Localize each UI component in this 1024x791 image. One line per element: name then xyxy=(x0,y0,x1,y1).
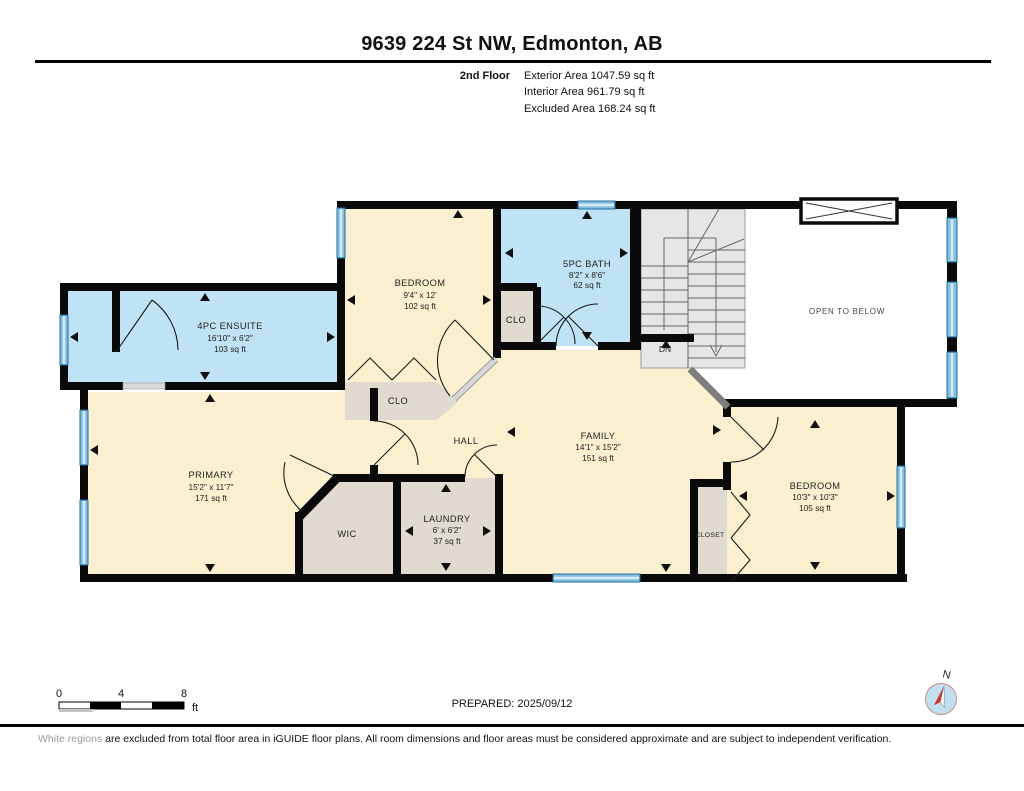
wall-segment xyxy=(393,474,465,482)
wall-segment xyxy=(80,574,907,582)
doorway-threshold xyxy=(123,383,165,389)
window xyxy=(553,574,640,582)
room-fills xyxy=(64,204,901,578)
stairs-dn-label: DN xyxy=(659,344,671,354)
wall-segment xyxy=(112,287,120,352)
window xyxy=(60,315,68,365)
wall-segment xyxy=(533,287,541,346)
floorplan-page: 9639 224 St NW, Edmonton, AB 2nd Floor E… xyxy=(0,0,1024,791)
room-label-laundry: LAUNDRY xyxy=(423,514,470,524)
wall-segment xyxy=(630,334,694,342)
wall-segment xyxy=(370,388,378,421)
wall-segment xyxy=(393,474,401,582)
disclaimer-prefix: White regions xyxy=(38,733,102,745)
room-area-bedroom-right: 105 sq ft xyxy=(799,503,832,513)
room-area-ensuite: 103 sq ft xyxy=(214,344,247,354)
disclaimer-text: White regions are excluded from total fl… xyxy=(38,733,891,745)
stairs-body xyxy=(641,209,745,368)
wall-segment xyxy=(690,479,698,578)
room-label-ensuite: 4PC ENSUITE xyxy=(197,321,262,331)
window xyxy=(947,352,957,398)
window xyxy=(337,208,345,258)
room-dims-bedroom-top: 9'4" x 12' xyxy=(403,290,437,300)
room-dims-bath: 8'2" x 8'6" xyxy=(569,270,605,280)
room-area-primary: 171 sq ft xyxy=(195,493,228,503)
room-area-laundry: 37 sq ft xyxy=(433,536,461,546)
wall-segment xyxy=(630,204,641,350)
room-label-wic: WIC xyxy=(337,529,356,539)
stairs xyxy=(641,209,745,368)
compass-north-label: N xyxy=(941,668,951,681)
window xyxy=(947,218,957,262)
room-label-clo-bedroom: CLO xyxy=(388,396,408,406)
footer-divider xyxy=(0,724,1024,727)
room-label-hall: HALL xyxy=(454,436,479,446)
wall-segment xyxy=(495,474,503,582)
wall-segment xyxy=(690,479,731,487)
wall-segment xyxy=(493,342,556,350)
window xyxy=(897,466,905,528)
wall-segment xyxy=(333,474,397,482)
window xyxy=(947,282,957,337)
room-label-closet: CLOSET xyxy=(696,532,725,539)
room-area-family: 151 sq ft xyxy=(582,453,615,463)
skylight-window xyxy=(801,199,897,223)
floorplan-drawing: 4PC ENSUITE 16'10" x 6'2" 103 sq ft BEDR… xyxy=(0,0,1024,791)
wall-segment xyxy=(60,283,341,291)
wall-segment xyxy=(723,399,957,407)
room-label-bath: 5PC BATH xyxy=(563,259,611,269)
room-label-primary: PRIMARY xyxy=(189,470,234,480)
room-label-bedroom-top: BEDROOM xyxy=(395,278,446,288)
room-label-bedroom-right: BEDROOM xyxy=(790,481,841,491)
room-dims-bedroom-right: 10'3" x 10'3" xyxy=(792,492,838,502)
disclaimer-rest: are excluded from total floor area in iG… xyxy=(102,733,891,745)
window xyxy=(578,201,615,209)
wall-segment xyxy=(598,342,641,350)
wall-segment xyxy=(493,204,501,358)
room-area-bath: 62 sq ft xyxy=(573,280,601,290)
room-label-family: FAMILY xyxy=(581,431,616,441)
room-dims-family: 14'1" x 15'2" xyxy=(575,442,621,452)
room-dims-ensuite: 16'10" x 6'2" xyxy=(207,333,253,343)
wall-segment xyxy=(295,512,303,582)
wall-segment xyxy=(723,407,731,417)
window xyxy=(80,410,88,465)
room-label-open-below: OPEN TO BELOW xyxy=(809,307,885,316)
room-area-bedroom-top: 102 sq ft xyxy=(404,301,437,311)
wall-segment xyxy=(165,382,345,390)
window xyxy=(80,500,88,565)
wall-segment xyxy=(493,283,537,291)
room-closet xyxy=(694,483,727,578)
room-label-clo-bath: CLO xyxy=(506,315,526,325)
wall-segment xyxy=(60,382,123,390)
prepared-date: PREPARED: 2025/09/12 xyxy=(0,698,1024,710)
room-dims-primary: 15'2" x 11'7" xyxy=(189,482,234,492)
room-dims-laundry: 6' x 6'2" xyxy=(433,525,462,535)
